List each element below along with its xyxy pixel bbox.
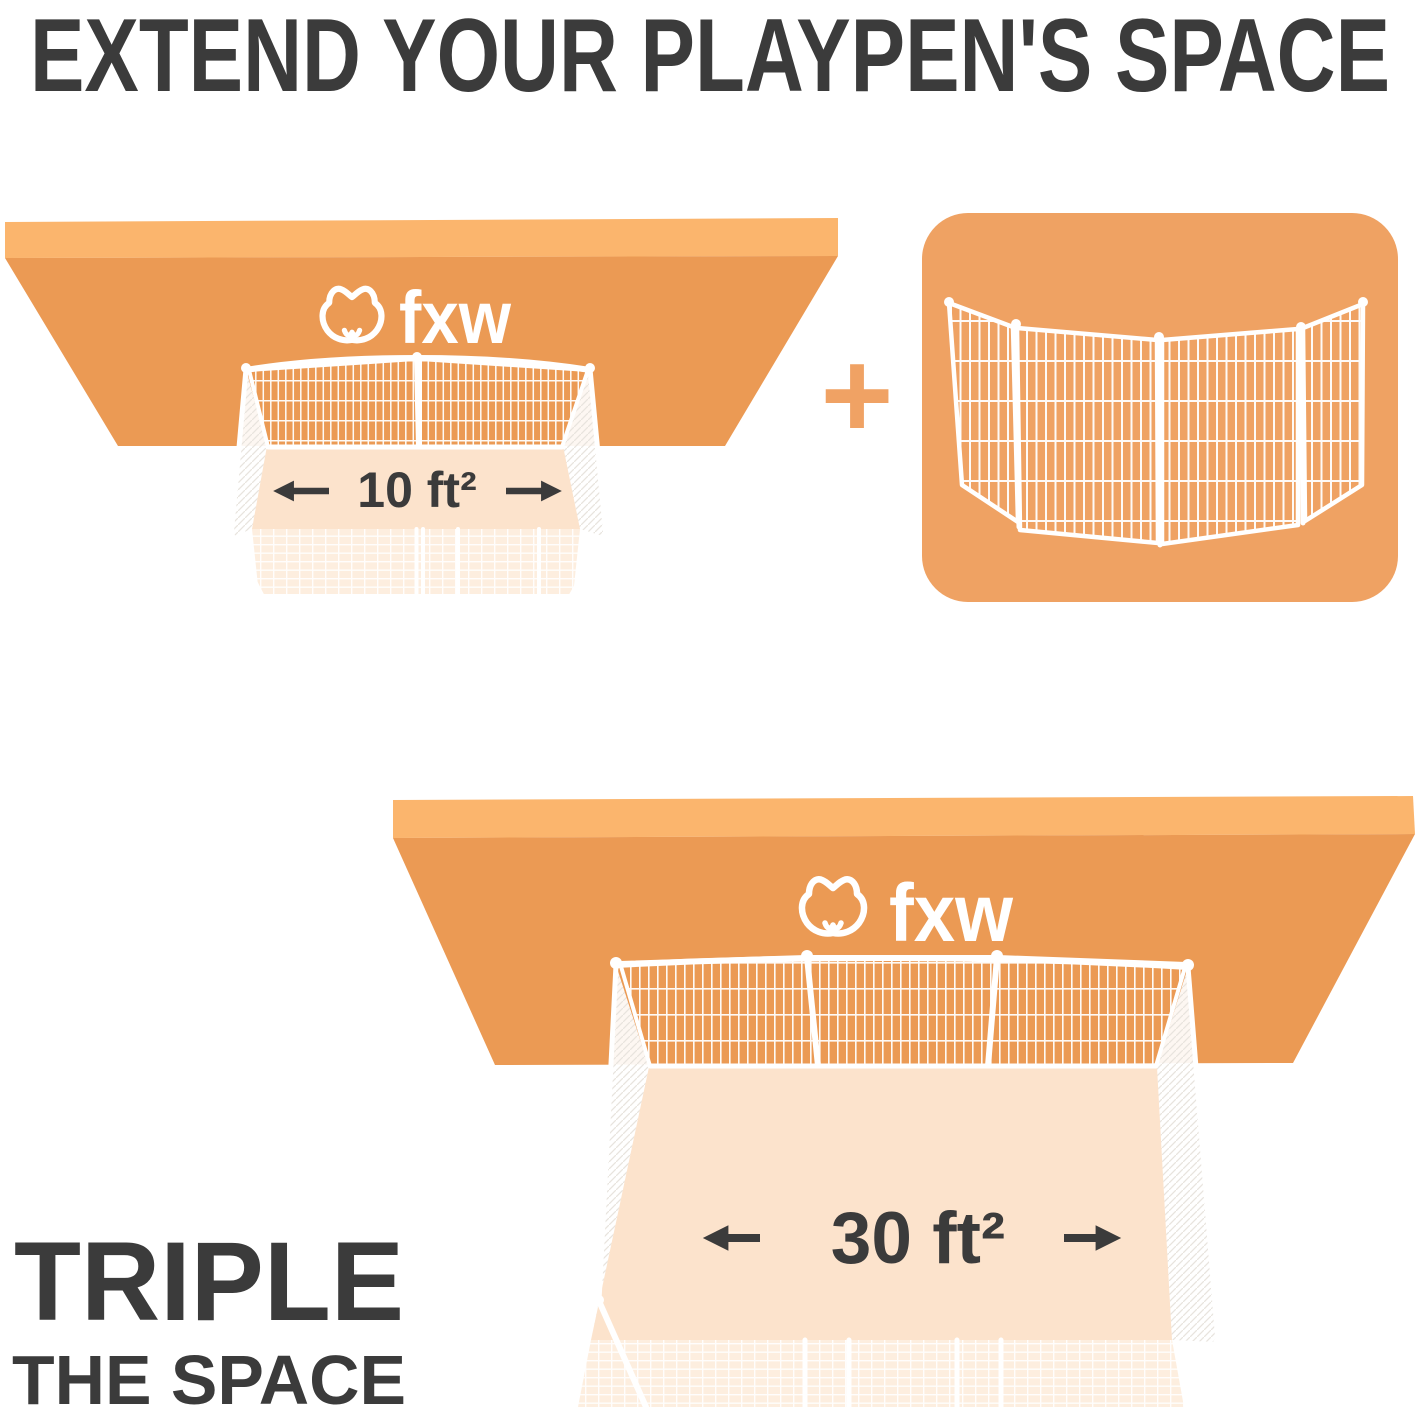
back-mesh-panel (808, 957, 996, 1066)
caption-line2: THE SPACE (12, 1341, 406, 1407)
back-mesh-panel (420, 359, 588, 447)
board-top-edge (393, 796, 1415, 838)
logo-pet-mouth (344, 330, 359, 338)
after-illustration: fxw 30 ft² (393, 796, 1415, 1407)
caption: TRIPLE THE SPACE (12, 1219, 406, 1407)
caption-line1: TRIPLE (14, 1219, 404, 1344)
fence-panels (944, 297, 1368, 545)
added-panels-card (922, 213, 1398, 602)
back-mesh-panel (620, 957, 817, 1066)
logo-pet-mouth (825, 923, 841, 931)
area-label-before: 10 ft² (357, 462, 476, 518)
before-illustration: fxw 10 ft² (5, 218, 838, 597)
board-top-edge (5, 218, 838, 258)
page-title: EXTEND YOUR PLAYPEN'S SPACE (30, 0, 1390, 114)
playpen-infographic: EXTEND YOUR PLAYPEN'S SPACE fxw (0, 0, 1420, 1407)
front-mesh (578, 1340, 1184, 1407)
logo-text: fxw (889, 868, 1013, 959)
playpen-large (578, 950, 1223, 1407)
fence-panel (1017, 328, 1158, 543)
area-label-after: 30 ft² (831, 1198, 1005, 1279)
logo-text: fxw (399, 276, 511, 359)
back-mesh-panel (989, 957, 1186, 1066)
plus-icon: + (821, 326, 894, 465)
fence-panel (1303, 304, 1363, 521)
fence-panel (1162, 329, 1298, 544)
back-mesh-panel (249, 359, 418, 447)
